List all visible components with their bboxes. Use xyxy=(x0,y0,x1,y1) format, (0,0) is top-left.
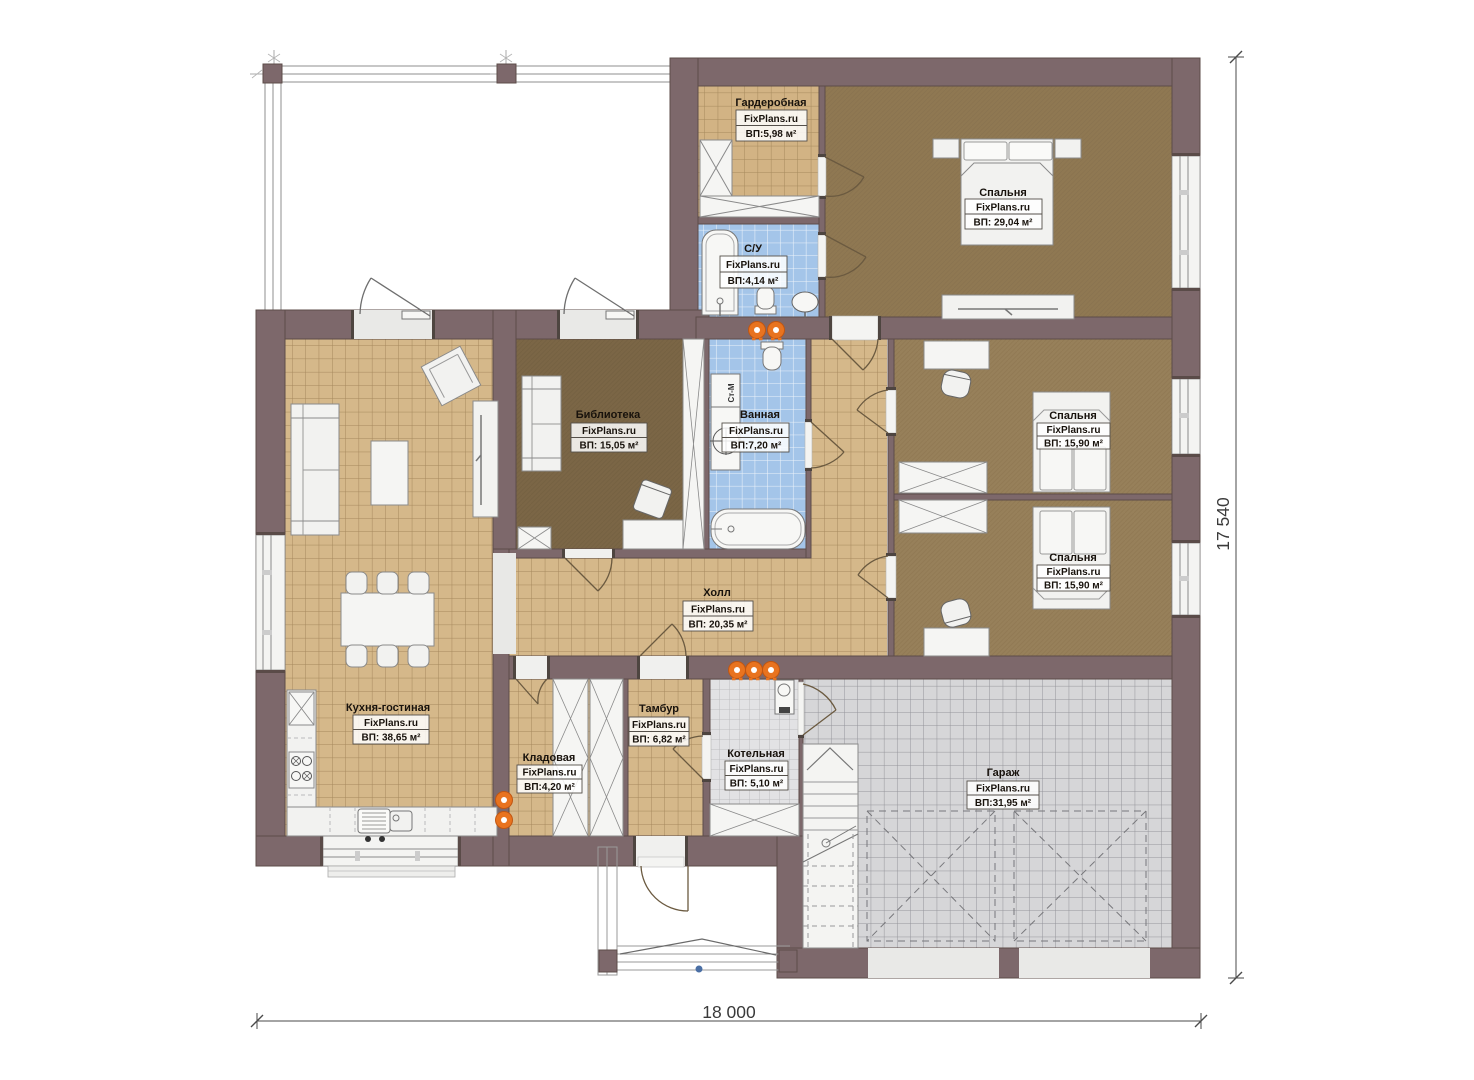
svg-text:Котельная: Котельная xyxy=(727,748,785,760)
svg-text:ВП: 15,90 м²: ВП: 15,90 м² xyxy=(1044,581,1104,592)
svg-text:FixPlans.ru: FixPlans.ru xyxy=(726,260,780,271)
svg-text:FixPlans.ru: FixPlans.ru xyxy=(976,784,1030,795)
svg-text:ВП: 5,10 м²: ВП: 5,10 м² xyxy=(730,779,784,790)
svg-text:ВП:7,20 м²: ВП:7,20 м² xyxy=(731,441,782,452)
svg-text:Кухня-гостиная: Кухня-гостиная xyxy=(346,702,430,714)
svg-text:FixPlans.ru: FixPlans.ru xyxy=(730,764,784,775)
svg-text:FixPlans.ru: FixPlans.ru xyxy=(729,426,783,437)
svg-text:FixPlans.ru: FixPlans.ru xyxy=(632,720,686,731)
svg-text:FixPlans.ru: FixPlans.ru xyxy=(523,768,577,779)
svg-text:FixPlans.ru: FixPlans.ru xyxy=(582,426,636,437)
svg-text:ВП: 38,65 м²: ВП: 38,65 м² xyxy=(361,733,421,744)
svg-text:ВП: 6,82 м²: ВП: 6,82 м² xyxy=(632,735,686,746)
svg-text:ВП:5,98 м²: ВП:5,98 м² xyxy=(746,129,797,140)
svg-text:Тамбур: Тамбур xyxy=(639,703,679,715)
svg-text:ВП: 15,05 м²: ВП: 15,05 м² xyxy=(579,441,639,452)
svg-text:Спальня: Спальня xyxy=(1049,552,1097,564)
svg-text:ВП: 20,35 м²: ВП: 20,35 м² xyxy=(688,620,748,631)
svg-text:Спальня: Спальня xyxy=(979,187,1027,199)
svg-text:Ст-М: Ст-М xyxy=(727,383,736,402)
svg-text:FixPlans.ru: FixPlans.ru xyxy=(744,114,798,125)
svg-text:FixPlans.ru: FixPlans.ru xyxy=(1047,425,1101,436)
svg-text:18 000: 18 000 xyxy=(702,1002,756,1022)
svg-text:Ванная: Ванная xyxy=(740,409,780,421)
svg-text:Гардеробная: Гардеробная xyxy=(735,97,806,109)
svg-text:Библиотека: Библиотека xyxy=(576,409,641,421)
svg-text:Гараж: Гараж xyxy=(987,767,1020,779)
svg-text:Кладовая: Кладовая xyxy=(523,752,576,764)
svg-text:ВП:4,20 м²: ВП:4,20 м² xyxy=(524,782,575,793)
svg-text:FixPlans.ru: FixPlans.ru xyxy=(1047,567,1101,578)
svg-text:ВП:31,95 м²: ВП:31,95 м² xyxy=(975,798,1032,809)
svg-text:FixPlans.ru: FixPlans.ru xyxy=(364,718,418,729)
svg-text:ВП: 29,04 м²: ВП: 29,04 м² xyxy=(973,218,1033,229)
svg-text:ВП: 15,90 м²: ВП: 15,90 м² xyxy=(1044,439,1104,450)
svg-text:ВП:4,14 м²: ВП:4,14 м² xyxy=(728,276,779,287)
svg-text:17 540: 17 540 xyxy=(1213,497,1233,551)
svg-text:FixPlans.ru: FixPlans.ru xyxy=(976,203,1030,214)
svg-text:FixPlans.ru: FixPlans.ru xyxy=(691,605,745,616)
svg-text:С/У: С/У xyxy=(744,243,762,255)
svg-text:Холл: Холл xyxy=(703,587,731,599)
svg-text:Спальня: Спальня xyxy=(1049,410,1097,422)
